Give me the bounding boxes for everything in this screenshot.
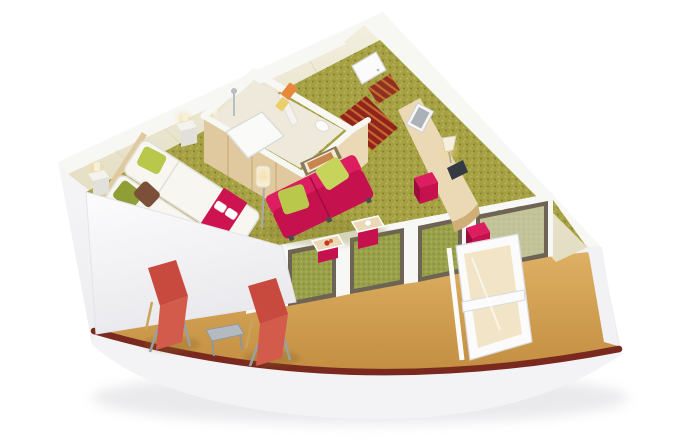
floor-lamp-glow (254, 166, 272, 186)
mullion-end (548, 200, 553, 257)
shower-head-icon (231, 88, 237, 94)
nightstand-left-lamp (94, 162, 100, 171)
cup-on-table (365, 220, 372, 227)
entrance-door-knob (377, 69, 380, 72)
suite-3d-render (0, 0, 680, 440)
flower-plate-orange (329, 239, 333, 243)
magenta-ottoman-1 (414, 172, 438, 204)
flower-plate-red (324, 240, 329, 245)
mullion-c (404, 226, 418, 284)
nightstand-right-lamp (182, 112, 188, 121)
suite-floorplan-canvas (0, 0, 680, 440)
